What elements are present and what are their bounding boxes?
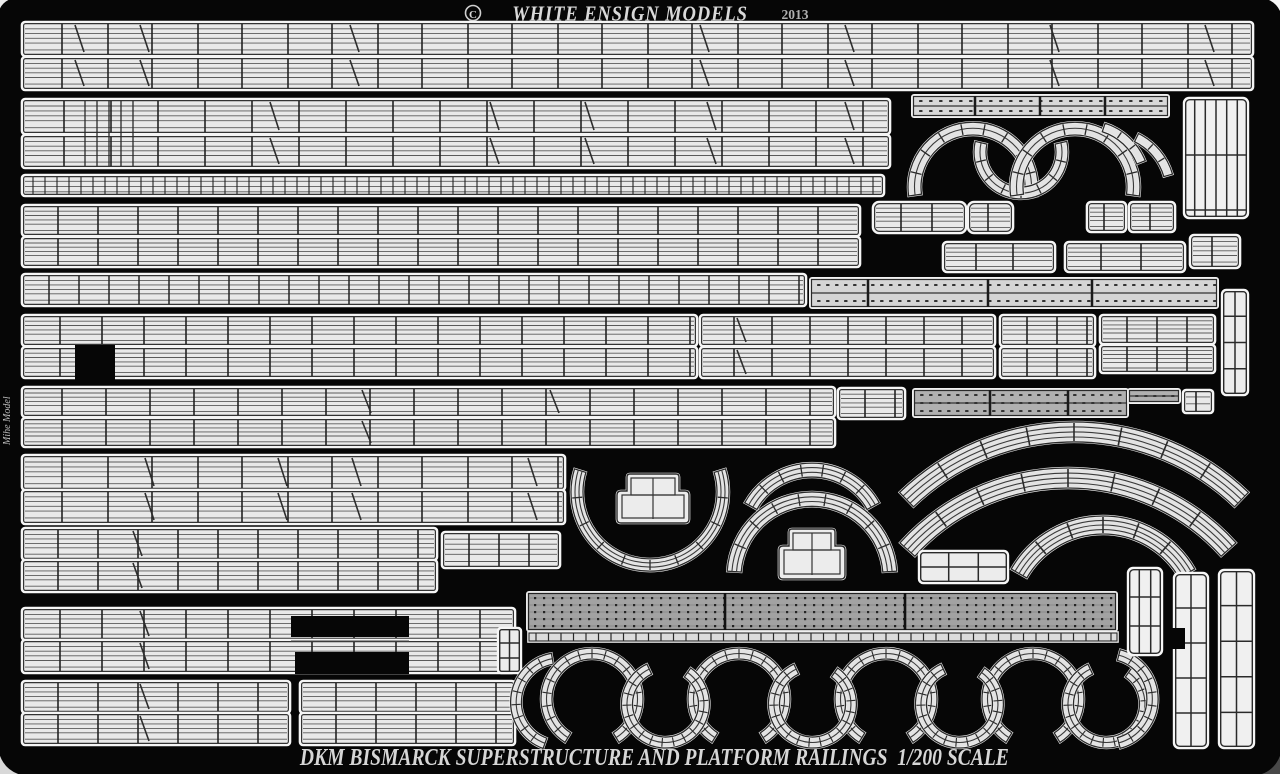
svg-text:DKM BISMARCK SUPERSTRUCTURE AN: DKM BISMARCK SUPERSTRUCTURE AND PLATFORM… — [299, 743, 1009, 771]
svg-text:C: C — [469, 9, 477, 21]
svg-text:2013: 2013 — [782, 7, 809, 22]
svg-text:Mihe Model: Mihe Model — [2, 396, 13, 446]
